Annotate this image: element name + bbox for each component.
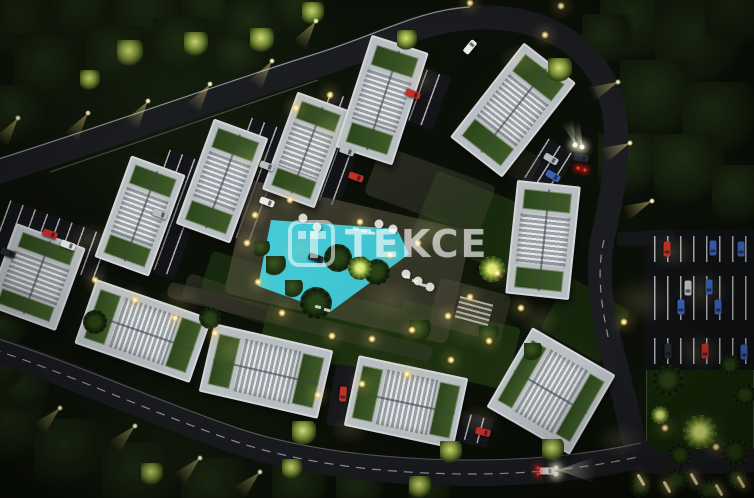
lit-tree xyxy=(548,58,572,82)
garden-light xyxy=(286,196,295,205)
car-windshield xyxy=(741,353,746,356)
lit-tree xyxy=(440,441,462,463)
garden-bush xyxy=(254,241,270,257)
ground-light-glow xyxy=(498,44,542,77)
car-windshield xyxy=(469,42,475,48)
car-windshield xyxy=(413,92,418,98)
ground-light-glow xyxy=(674,333,726,372)
garden-light xyxy=(466,293,475,302)
car xyxy=(738,242,745,257)
watermark-logo-square xyxy=(298,231,306,239)
headlight-glow xyxy=(580,145,585,150)
garden-bush xyxy=(266,256,286,276)
ground-light-glow xyxy=(308,114,352,147)
car xyxy=(715,300,722,315)
palm-tree xyxy=(669,444,691,466)
garden-bush xyxy=(524,343,542,361)
garden-light xyxy=(131,296,140,305)
ground-light-glow xyxy=(360,278,420,323)
landscape-spotlight xyxy=(207,81,213,87)
car xyxy=(741,345,748,360)
car-windshield xyxy=(551,157,556,163)
lit-tree xyxy=(397,30,417,50)
landscape-spotlight xyxy=(85,110,91,116)
lit-tree xyxy=(250,28,274,52)
garden-light xyxy=(251,211,260,220)
landscape-spotlight xyxy=(197,455,203,461)
car xyxy=(710,241,717,256)
garden-light xyxy=(171,314,180,323)
palm-tree xyxy=(698,480,718,498)
garden-light xyxy=(444,312,453,321)
ground-light-glow xyxy=(226,142,274,178)
car-windshield xyxy=(710,249,715,252)
garden-light xyxy=(408,326,417,335)
garden-light xyxy=(620,318,629,327)
car-windshield xyxy=(267,200,272,206)
garden-light xyxy=(314,391,323,400)
garden-light xyxy=(517,304,526,313)
lit-tree xyxy=(292,421,316,445)
garden-light xyxy=(278,309,287,318)
car-windshield xyxy=(483,430,487,436)
palm-tree xyxy=(734,384,754,406)
ground-light-glow xyxy=(330,415,370,445)
watermark-text: TEKCE xyxy=(345,225,488,263)
ground-light-glow xyxy=(607,276,675,327)
landscape-spotlight xyxy=(627,140,633,146)
garden-light xyxy=(493,269,502,278)
garden-light xyxy=(368,335,377,344)
landscape-spotlight xyxy=(57,405,63,411)
lit-tree xyxy=(542,439,564,461)
garden-light xyxy=(243,239,252,248)
car-windshield xyxy=(160,212,165,218)
car-windshield xyxy=(678,308,683,311)
headlight-glow xyxy=(573,143,578,148)
landscape-spotlight xyxy=(313,18,319,24)
tail-light xyxy=(577,167,580,170)
landscape-spotlight xyxy=(257,469,263,475)
palm-tree xyxy=(720,355,740,375)
car xyxy=(665,344,672,359)
garden-light xyxy=(541,31,550,40)
car xyxy=(702,344,709,359)
watermark: TEKCE xyxy=(288,220,488,267)
lit-tree xyxy=(409,476,431,498)
car-windshield xyxy=(665,352,670,355)
watermark-logo-icon xyxy=(288,220,335,267)
car xyxy=(678,300,685,315)
lit-tree xyxy=(184,32,208,56)
tail-light xyxy=(537,467,540,470)
garden-light xyxy=(403,370,412,379)
ground-light-glow xyxy=(66,222,114,258)
garden-light xyxy=(292,104,301,113)
car-windshield xyxy=(706,288,711,291)
pool-umbrella xyxy=(426,283,435,292)
landscape-spotlight xyxy=(145,98,151,104)
garden-light xyxy=(557,2,566,11)
car-windshield xyxy=(548,468,551,473)
car xyxy=(540,468,555,475)
garden-light xyxy=(211,329,220,338)
car xyxy=(664,242,671,257)
tail-light xyxy=(584,169,587,172)
palm-tree xyxy=(199,307,221,329)
car-windshield xyxy=(685,289,690,292)
car-windshield xyxy=(553,174,558,180)
palm-tree xyxy=(722,439,748,465)
car-windshield xyxy=(68,243,73,249)
car-windshield xyxy=(340,395,346,398)
lit-tree xyxy=(282,459,302,479)
car-windshield xyxy=(8,251,13,257)
car-windshield xyxy=(702,352,707,355)
ground-light-glow xyxy=(158,284,202,317)
car-windshield xyxy=(347,149,352,155)
car-windshield xyxy=(715,308,720,311)
ground-light-glow xyxy=(648,234,696,270)
car-windshield xyxy=(50,232,55,238)
landscape-spotlight xyxy=(649,198,655,204)
tail-light xyxy=(537,473,540,476)
apartment-building xyxy=(505,180,581,300)
lit-palm-tree xyxy=(651,406,669,424)
car-windshield xyxy=(582,156,586,162)
landscape-spotlight xyxy=(615,79,621,85)
car-windshield xyxy=(267,164,272,170)
garden-light xyxy=(661,424,670,433)
headlight-glow xyxy=(554,466,559,471)
garden-light xyxy=(447,356,456,365)
palm-tree xyxy=(300,287,332,319)
headlight-glow xyxy=(554,472,559,477)
lit-tree xyxy=(117,40,143,66)
garden-light xyxy=(91,276,100,285)
car xyxy=(339,386,347,402)
garden-bush xyxy=(285,280,303,298)
lit-tree xyxy=(80,70,100,90)
landscape-spotlight xyxy=(132,423,138,429)
aerial-night-render: TEKCE xyxy=(0,0,754,498)
garden-light xyxy=(328,332,337,341)
landscape-spotlight xyxy=(269,58,275,64)
ground-light-glow xyxy=(596,422,644,458)
car xyxy=(706,280,713,295)
landscape-spotlight xyxy=(15,115,21,121)
garden-light xyxy=(358,380,367,389)
garden-light xyxy=(326,91,335,100)
garden-light xyxy=(485,337,494,346)
car-windshield xyxy=(738,250,743,253)
car xyxy=(685,281,692,296)
watermark-logo-t-stem xyxy=(310,231,318,258)
garden-light xyxy=(254,278,263,287)
palm-tree xyxy=(653,365,683,395)
lit-tree xyxy=(141,463,163,485)
garden-light xyxy=(712,443,721,452)
car-windshield xyxy=(664,250,669,253)
car-windshield xyxy=(356,175,361,181)
palm-tree xyxy=(83,310,107,334)
